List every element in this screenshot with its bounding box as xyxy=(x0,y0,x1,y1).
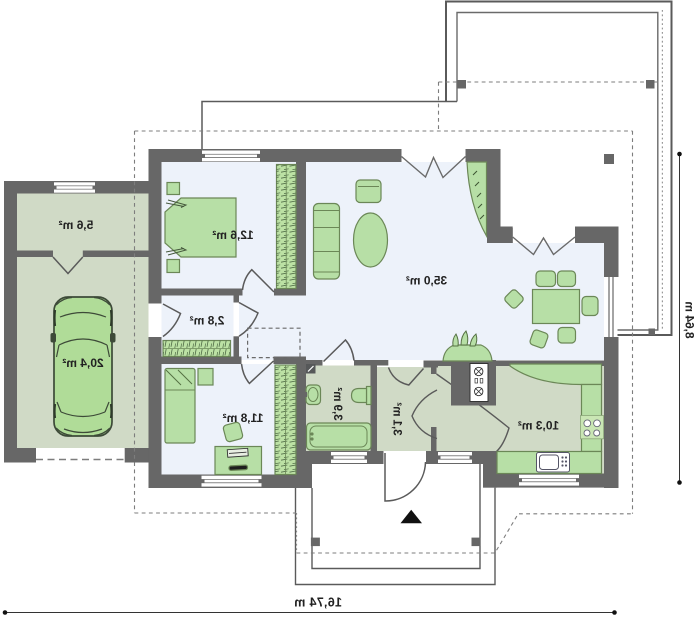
svg-text:12,6 m²: 12,6 m² xyxy=(212,228,253,242)
svg-text:11,8 m²: 11,8 m² xyxy=(223,411,264,425)
svg-text:2,8 m²: 2,8 m² xyxy=(190,314,225,328)
svg-text:16,74 m: 16,74 m xyxy=(294,596,342,610)
svg-text:5,6 m²: 5,6 m² xyxy=(59,218,94,232)
svg-text:3,9 m²: 3,9 m² xyxy=(331,387,343,420)
svg-text:8,64 m: 8,64 m xyxy=(683,301,697,338)
svg-text:3,1 m²: 3,1 m² xyxy=(391,402,403,435)
svg-text:10,3 m²: 10,3 m² xyxy=(518,419,559,433)
svg-text:20,4 m²: 20,4 m² xyxy=(62,356,103,370)
svg-text:35,0 m²: 35,0 m² xyxy=(406,274,447,288)
